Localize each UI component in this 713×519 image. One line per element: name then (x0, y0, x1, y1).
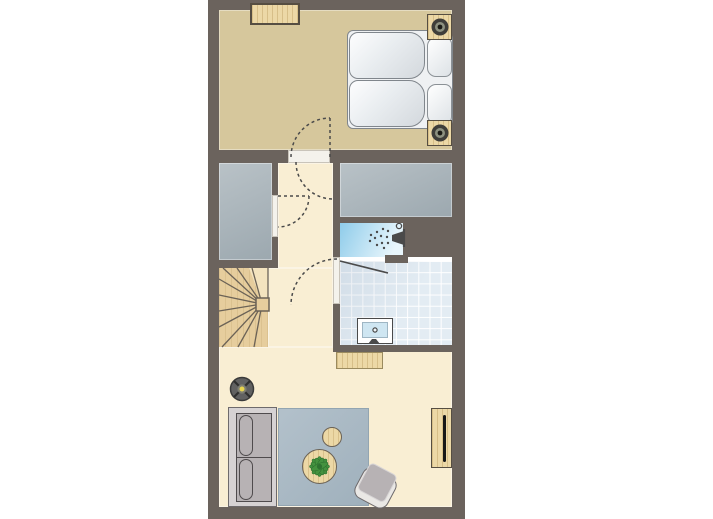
round-table (302, 449, 337, 484)
cabinet-under-bathroom (336, 352, 383, 369)
tv-icon (443, 415, 446, 462)
sofa-back-cushion-bottom (239, 459, 253, 500)
threshold-storage-door (272, 195, 278, 237)
wall-shower-stub (385, 255, 408, 263)
staircase-floor (219, 268, 268, 347)
bed-mattress-top (349, 32, 425, 79)
tv-sideboard (431, 408, 452, 468)
side-stool (322, 427, 342, 447)
washbasin-bowl (362, 322, 388, 338)
room-hallway-lower (268, 268, 333, 347)
room-void-right (340, 163, 452, 217)
sofa-seat-divider (237, 457, 271, 458)
nightstand-bottom (427, 120, 452, 146)
room-hallway-upper (278, 163, 333, 268)
wardrobe-dresser (250, 3, 300, 25)
floor-plan (0, 0, 713, 519)
shower-floor (340, 223, 403, 257)
threshold-bedroom-door (288, 150, 330, 163)
wall-bathroom-bottom (333, 345, 452, 352)
pillow-bottom (427, 84, 452, 124)
room-storage-left (219, 163, 272, 260)
pillow-top (427, 37, 452, 77)
sofa-back-cushion-top (239, 415, 253, 456)
threshold-bathroom-door (333, 257, 340, 304)
nightstand-top (427, 14, 452, 40)
bed-mattress-bottom (349, 80, 425, 127)
